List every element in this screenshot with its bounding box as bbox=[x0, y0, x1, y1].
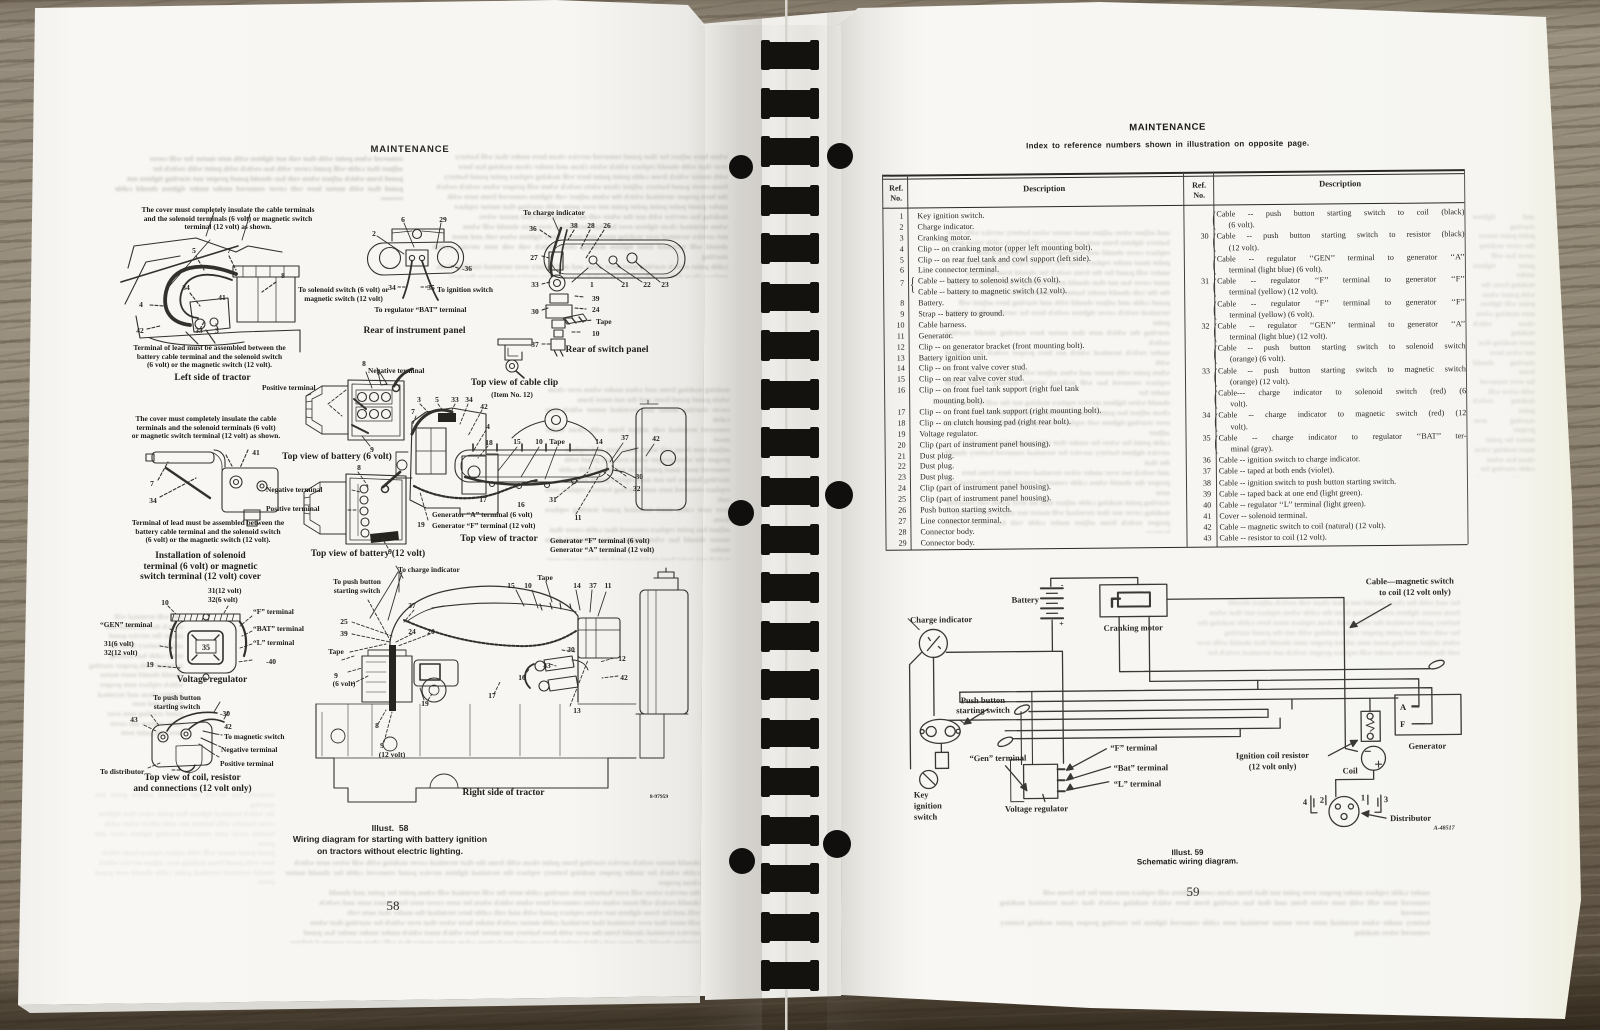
svg-text:Coil: Coil bbox=[1343, 765, 1359, 775]
svg-text:A: A bbox=[1400, 702, 1407, 712]
svg-text:to coil (12 volt only): to coil (12 volt only) bbox=[1379, 586, 1451, 597]
svg-text:3: 3 bbox=[1384, 794, 1388, 804]
svg-text:4: 4 bbox=[1303, 797, 1308, 807]
svg-text:(12 volt only): (12 volt only) bbox=[1249, 761, 1297, 771]
svg-text:-: - bbox=[1061, 580, 1064, 589]
svg-text:Push button: Push button bbox=[961, 695, 1006, 705]
svg-text:F: F bbox=[1400, 719, 1405, 729]
svg-text:ignition: ignition bbox=[914, 800, 942, 810]
svg-text:starting switch: starting switch bbox=[956, 705, 1010, 716]
svg-text:Distributor: Distributor bbox=[1390, 813, 1431, 823]
svg-text:Cable—magnetic switch: Cable—magnetic switch bbox=[1366, 575, 1454, 586]
svg-text:Key: Key bbox=[914, 790, 929, 800]
svg-text:+: + bbox=[1059, 619, 1064, 628]
svg-text:“F” terminal: “F” terminal bbox=[1110, 742, 1158, 752]
svg-text:“Gen” terminal: “Gen” terminal bbox=[969, 753, 1027, 764]
svg-text:Ignition coil resistor: Ignition coil resistor bbox=[1236, 750, 1309, 761]
svg-text:Charge indicator: Charge indicator bbox=[910, 614, 972, 625]
svg-text:1: 1 bbox=[1361, 792, 1365, 802]
svg-text:Voltage regulator: Voltage regulator bbox=[1005, 803, 1068, 814]
svg-text:2: 2 bbox=[1320, 795, 1324, 805]
svg-text:“Bat” terminal: “Bat” terminal bbox=[1114, 762, 1169, 773]
svg-text:A-48517: A-48517 bbox=[1433, 825, 1456, 831]
svg-text:Generator: Generator bbox=[1408, 741, 1446, 751]
svg-text:Battery: Battery bbox=[1011, 594, 1039, 604]
svg-text:Cranking motor: Cranking motor bbox=[1104, 622, 1164, 633]
svg-text:switch: switch bbox=[914, 811, 938, 821]
svg-text:“L” terminal: “L” terminal bbox=[1114, 778, 1162, 788]
